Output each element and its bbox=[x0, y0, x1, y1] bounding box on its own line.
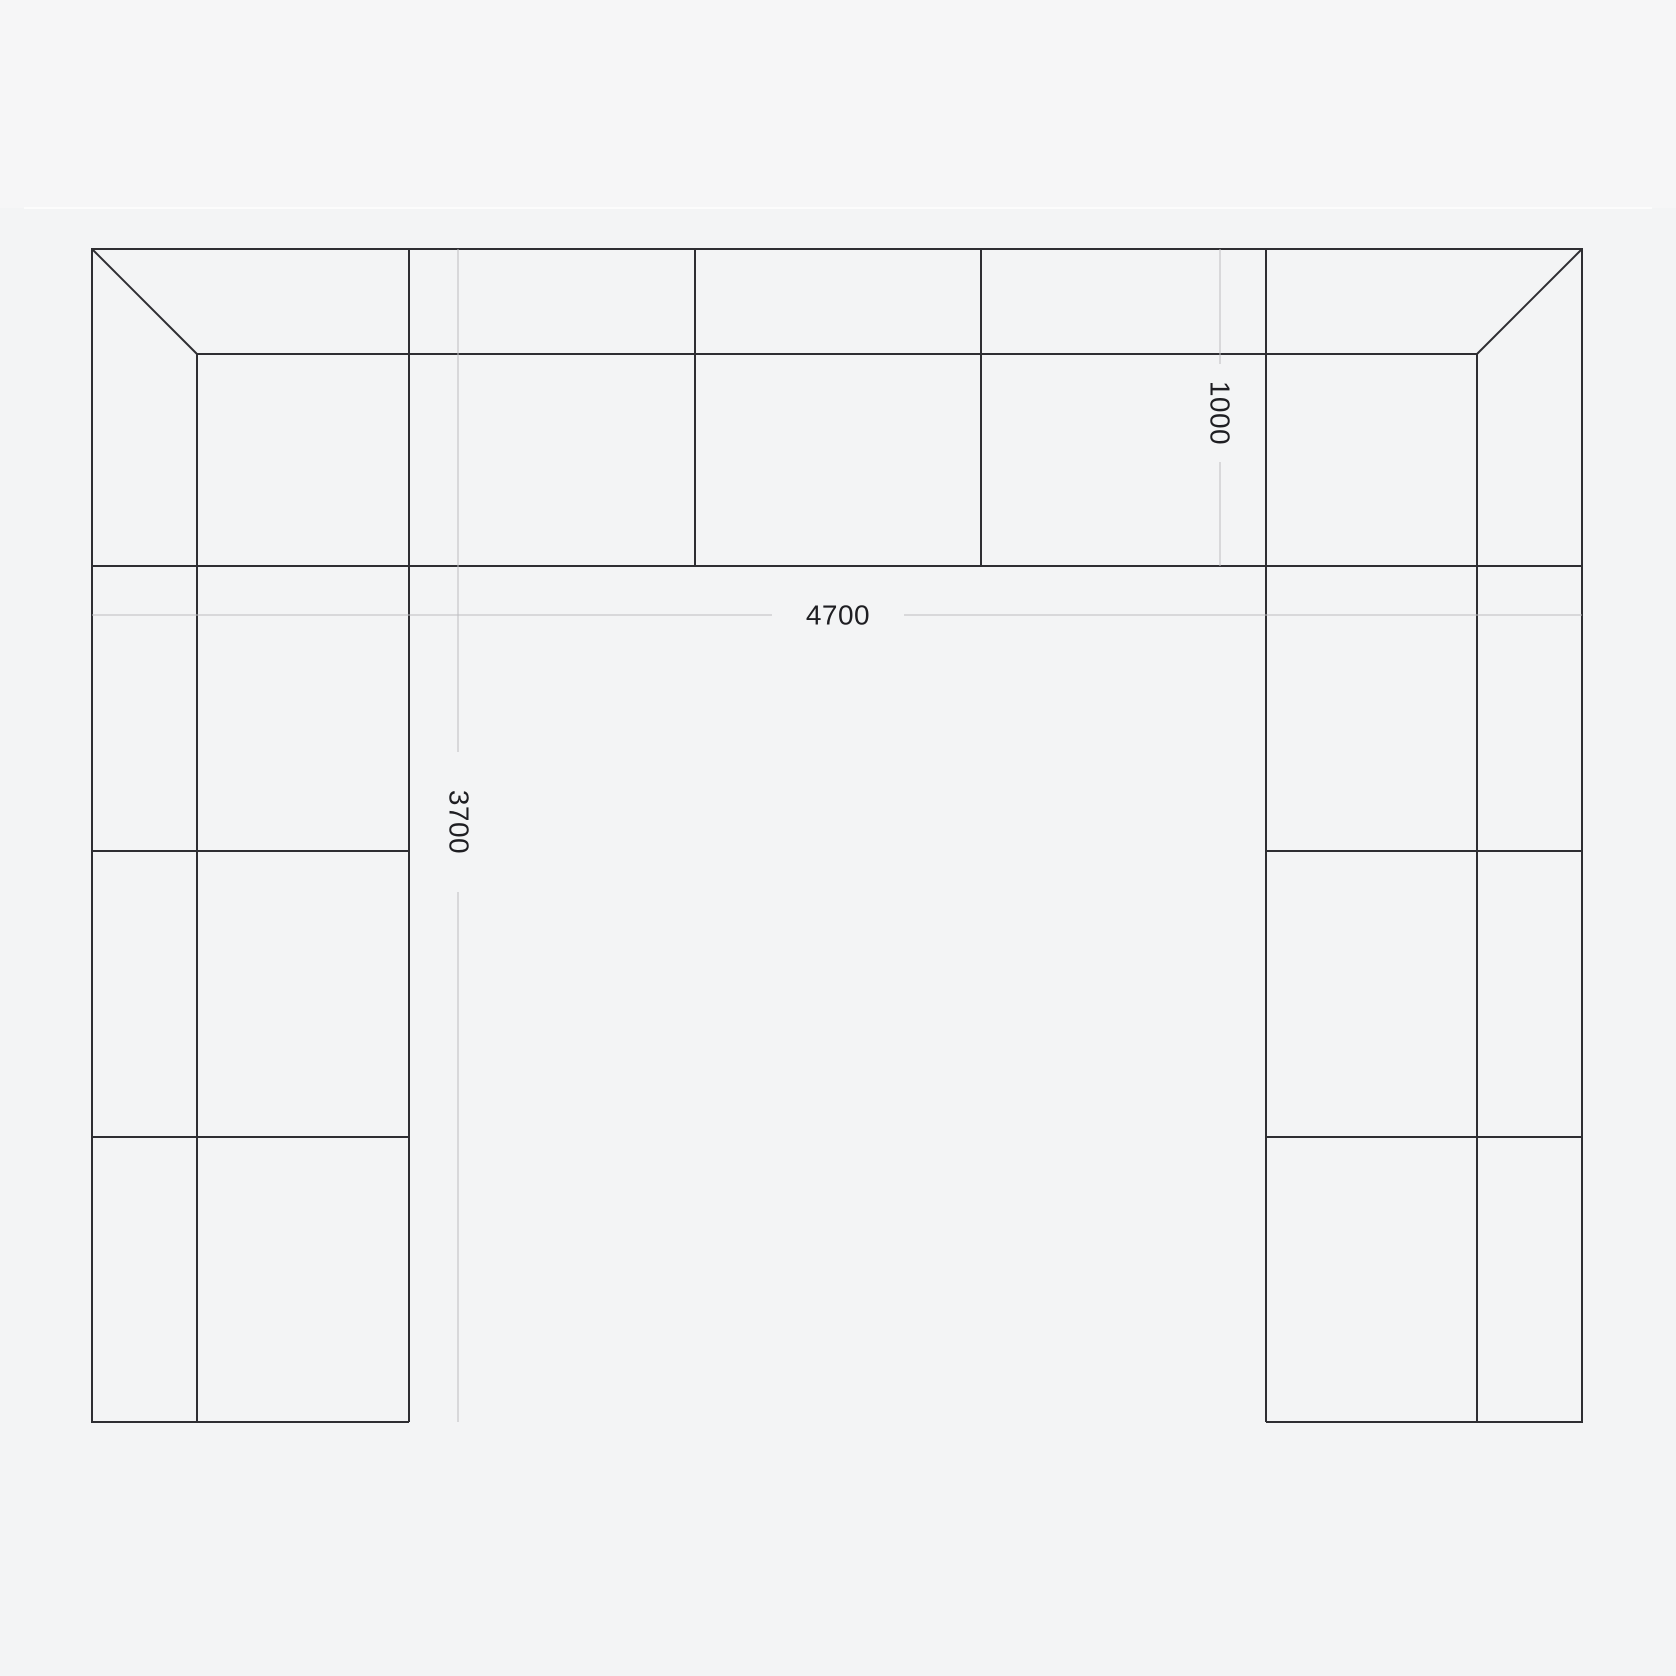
top-module-1 bbox=[409, 249, 695, 566]
right-module-2 bbox=[1266, 851, 1582, 1137]
top-module-2 bbox=[695, 249, 981, 566]
left-module-2 bbox=[92, 851, 409, 1137]
left-module-3 bbox=[92, 1137, 409, 1422]
left-module-1 bbox=[92, 566, 409, 851]
plan-canvas: 4700 3700 1000 bbox=[0, 0, 1676, 1676]
depth-dimension-label: 3700 bbox=[444, 790, 475, 854]
right-module-3 bbox=[1266, 1137, 1582, 1422]
right-module-1 bbox=[1266, 566, 1582, 851]
width-dimension-label: 4700 bbox=[806, 600, 870, 631]
module-depth-dimension-label: 1000 bbox=[1205, 381, 1236, 445]
top-strip bbox=[0, 0, 1676, 208]
